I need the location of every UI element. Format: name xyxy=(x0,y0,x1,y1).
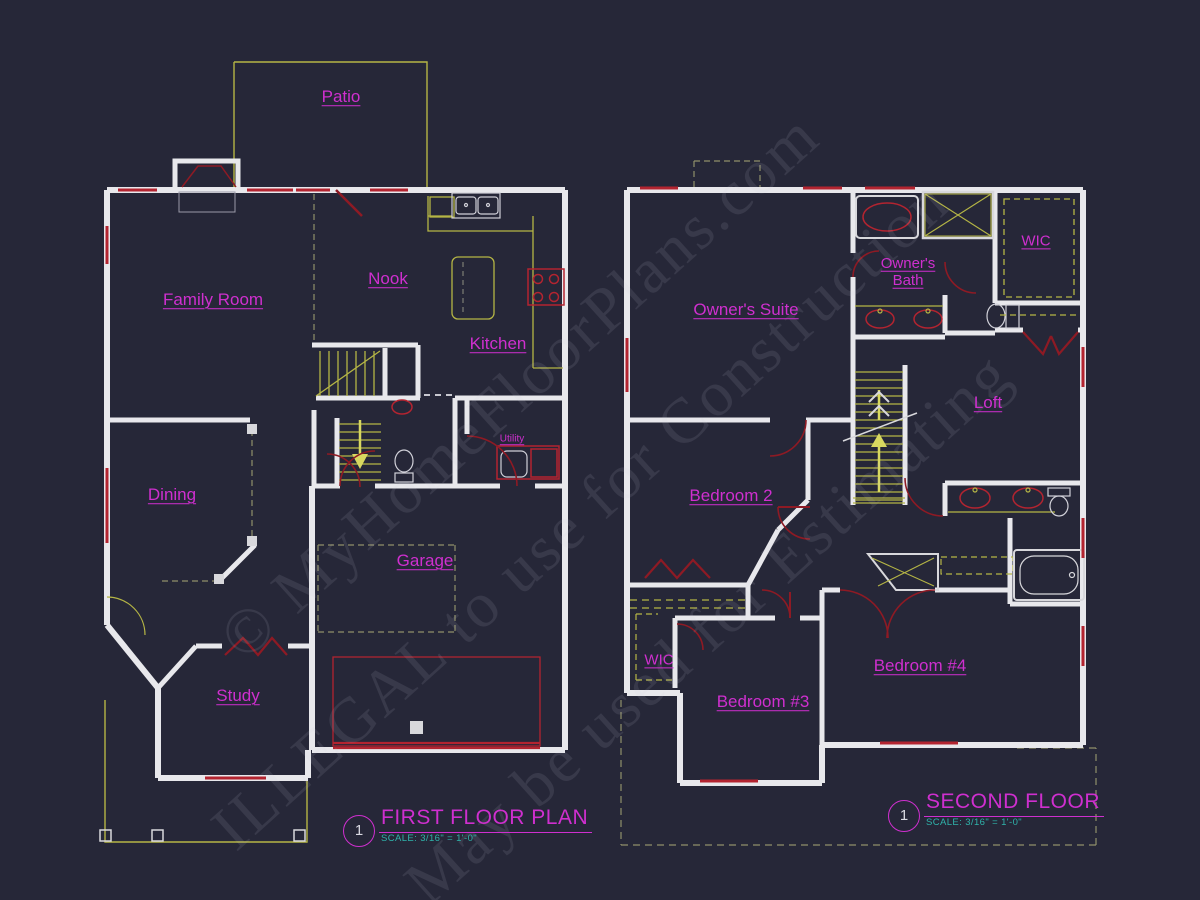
room-label-bedroom3: Bedroom #3 xyxy=(717,692,810,712)
room-label-bedroom2: Bedroom 2 xyxy=(689,486,772,506)
second-floor-scale: SCALE: 3/16" = 1'-0" xyxy=(926,817,1022,828)
hall-bath-tub xyxy=(1014,550,1084,600)
room-label-wic-lower: WIC xyxy=(644,651,673,668)
bedroom2-shelf-dashed xyxy=(630,600,746,608)
first-floor-interior-walls xyxy=(107,345,565,688)
room-label-dining: Dining xyxy=(148,485,196,505)
room-label-owners-bath: Owner's Bath xyxy=(881,255,936,290)
floor-plan-drawing xyxy=(0,0,1200,900)
room-label-family-room: Family Room xyxy=(163,290,263,310)
room-label-bedroom4: Bedroom #4 xyxy=(874,656,967,676)
patio-door-leaf xyxy=(336,190,362,216)
porch-columns xyxy=(100,830,305,841)
garage-door-opener xyxy=(410,721,423,734)
fireplace-firebox xyxy=(182,166,236,187)
owners-bath-tub xyxy=(863,203,911,231)
second-floor-title-circle: 1 xyxy=(888,800,920,832)
roof-outline-dashed xyxy=(621,700,1096,845)
garage-door-opening xyxy=(333,657,540,746)
first-floor-scale: SCALE: 3/16" = 1'-0" xyxy=(381,833,477,844)
patio-outline xyxy=(234,62,427,187)
owners-bath-toilet xyxy=(987,304,1019,328)
kitchen-sink xyxy=(452,193,500,218)
room-label-loft: Loft xyxy=(974,393,1002,413)
first-floor-stairs xyxy=(316,351,381,480)
hall-bath-toilet xyxy=(1048,488,1070,516)
stairs-down-arrow-head xyxy=(352,454,368,469)
owners-bath-shower-x xyxy=(925,194,991,236)
hall-bath-bench-dashed xyxy=(941,557,1013,574)
room-label-nook: Nook xyxy=(368,269,408,289)
chimney-dashed xyxy=(694,161,760,189)
wic-double-doors xyxy=(1023,332,1078,354)
room-label-kitchen: Kitchen xyxy=(470,334,527,354)
room-label-utility: Utility xyxy=(500,433,524,445)
bedroom2-window-seat xyxy=(645,560,710,578)
room-label-patio: Patio xyxy=(322,87,361,107)
wic-shelves-dashed xyxy=(1000,199,1080,315)
porch-outline xyxy=(105,700,307,842)
wic2-shelves-dashed xyxy=(636,614,672,680)
room-label-study: Study xyxy=(216,686,259,706)
owners-bath-sinks xyxy=(866,310,942,328)
blueprint-canvas: © MyHomeFloorPlans.com ILLEGAL to use fo… xyxy=(0,0,1200,900)
hall-bath-sinks xyxy=(960,488,1043,508)
powder-room-toilet xyxy=(395,450,413,482)
utility-appliances xyxy=(497,446,559,479)
room-label-owners-suite: Owner's Suite xyxy=(693,300,798,320)
first-floor-plan xyxy=(100,62,565,842)
first-floor-title: FIRST FLOOR PLAN xyxy=(379,806,592,833)
first-floor-title-circle: 1 xyxy=(343,815,375,847)
room-label-wic-top: WIC xyxy=(1021,232,1050,249)
fireplace-hearth xyxy=(179,192,235,212)
study-window-seat xyxy=(225,638,287,655)
dining-columns xyxy=(214,424,257,584)
room-label-garage: Garage xyxy=(397,551,454,571)
powder-room-sink xyxy=(392,400,412,414)
stairs-up-arrow-head xyxy=(871,433,887,447)
second-floor-title: SECOND FLOOR xyxy=(924,790,1104,817)
